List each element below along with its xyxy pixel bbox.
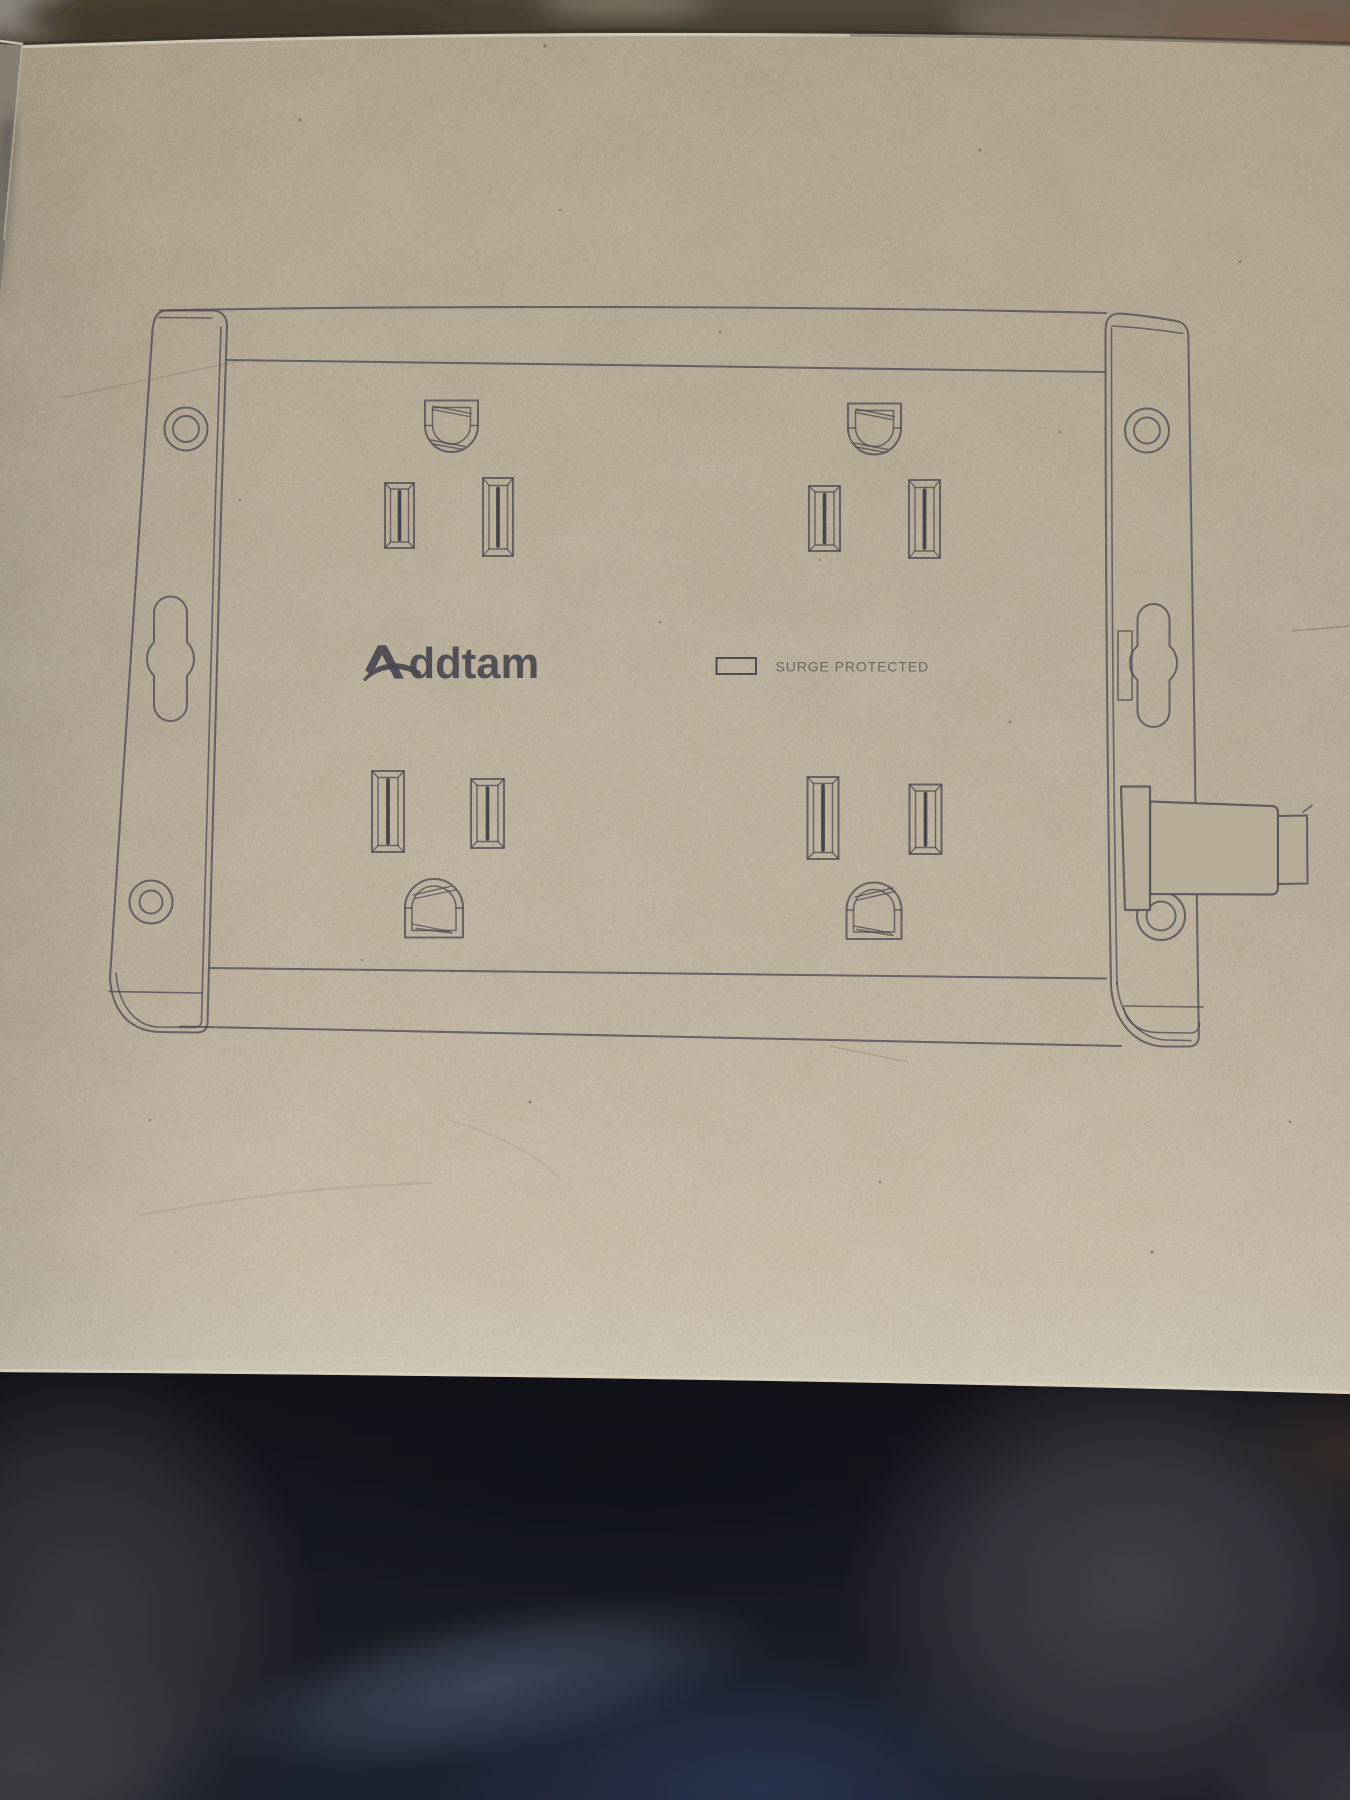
svg-text:ddtam: ddtam [409,640,540,688]
svg-text:SURGE PROTECTED: SURGE PROTECTED [776,659,930,675]
